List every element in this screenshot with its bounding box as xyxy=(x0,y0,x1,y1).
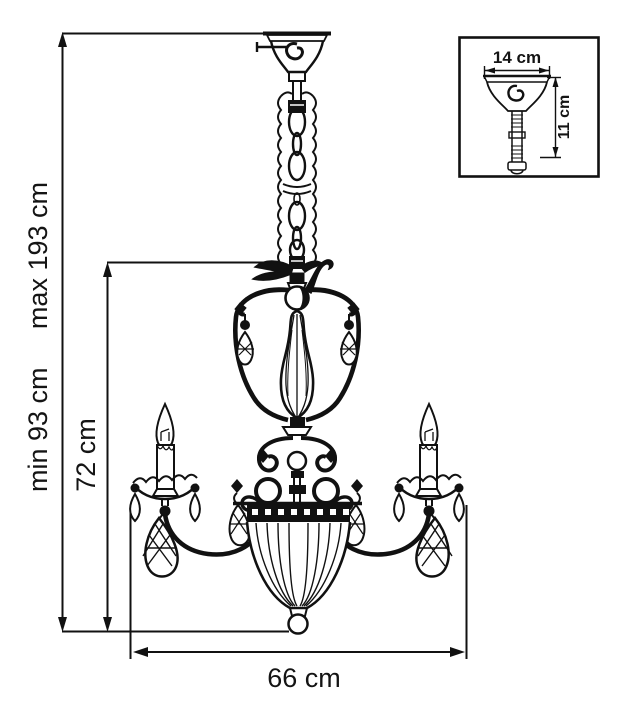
bottom-finial xyxy=(289,615,308,634)
right-crystal-large xyxy=(416,514,452,577)
overall-height-max-label: max 193 cm xyxy=(23,182,54,329)
left-crystal-large xyxy=(143,514,178,577)
ceiling-canopy xyxy=(257,34,331,82)
inset-canopy-height-label: 11 cm xyxy=(556,77,574,157)
lyre-vase xyxy=(281,311,313,418)
left-candle xyxy=(153,404,178,496)
right-scroll-arm xyxy=(305,289,359,420)
center-scroll-bracket xyxy=(257,417,337,503)
overall-height-label: min 93 cm max 193 cm xyxy=(23,182,53,492)
chain-links xyxy=(283,108,311,269)
body-height-label: 72 cm xyxy=(71,410,101,500)
left-scroll-arm xyxy=(235,289,289,420)
width-label: 66 cm xyxy=(244,663,364,693)
inset-canopy-width-label: 14 cm xyxy=(472,48,562,68)
diagram-drawing xyxy=(0,0,627,720)
glass-basket xyxy=(233,504,362,617)
left-crystal-small xyxy=(230,479,250,545)
chandelier-dimension-diagram: min 93 cm max 193 cm 72 cm 66 cm 14 cm 1… xyxy=(0,0,627,720)
overall-height-min-label: min 93 cm xyxy=(23,367,54,492)
right-candle xyxy=(416,404,441,496)
